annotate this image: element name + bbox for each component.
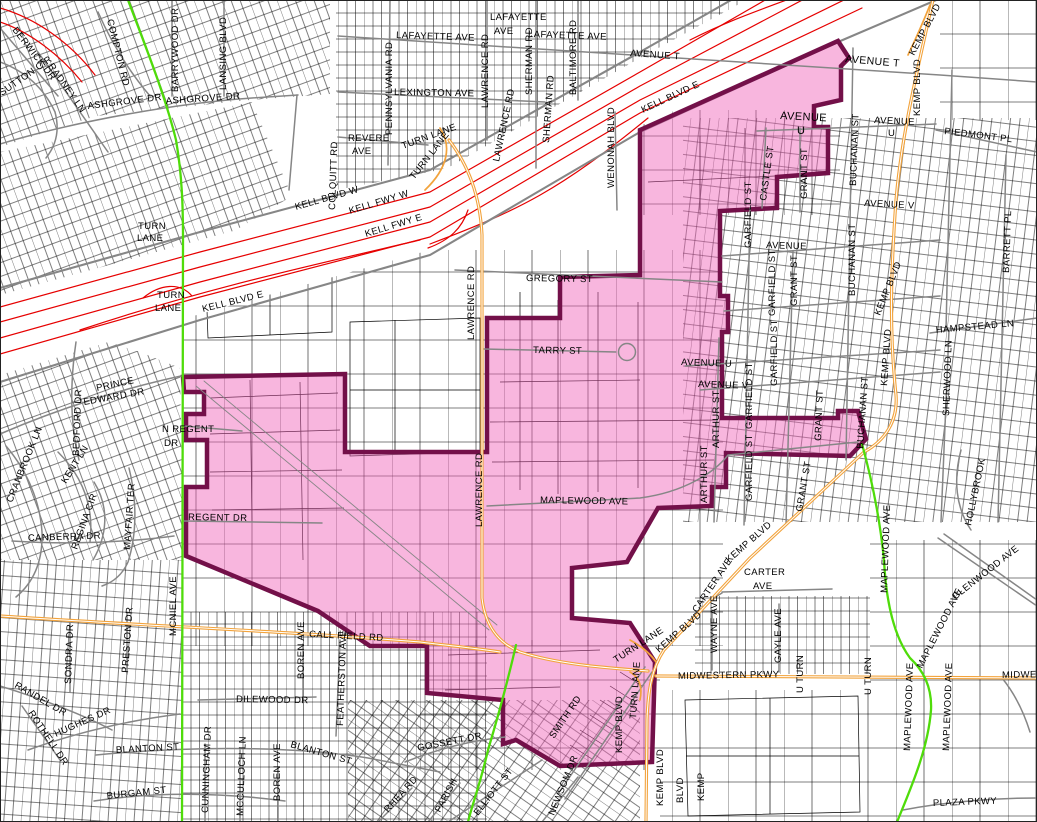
street-label-tarry-st: TARRY ST xyxy=(533,345,582,357)
street-label-avenue: AVENUE xyxy=(780,110,827,124)
street-label-ave: AVE xyxy=(494,26,514,37)
street-label-baltimore-rd: BALTIMORE RD xyxy=(568,20,579,95)
street-label-avenue-u: AVENUE U xyxy=(681,357,732,370)
street-label-u-turn: U TURN xyxy=(795,655,806,693)
street-label-maplewood-ave: MAPLEWOOD AVE xyxy=(540,495,629,508)
street-label-arthur-st: ARTHUR ST xyxy=(699,445,710,503)
street-label-sherman-rd: SHERMAN RD xyxy=(524,27,535,95)
street-label-barrywood-dr: BARRYWOOD DR xyxy=(170,8,181,92)
street-label-boren-ave: BOREN AVE xyxy=(272,743,283,801)
street-label-u-turn: U TURN xyxy=(863,657,874,695)
street-label-carter: CARTER xyxy=(744,567,785,578)
street-label-ave: AVE xyxy=(753,581,773,592)
street-label-garfield-st: GARFIELD ST xyxy=(769,319,780,386)
street-label-grant-st: GRANT ST xyxy=(813,390,826,441)
street-label-gregory-st: GREGORY ST xyxy=(526,273,593,285)
street-label-wenonah-blvd: WENONAH BLVD xyxy=(606,107,617,188)
street-label-lafayette: LAFAYETTE xyxy=(490,12,547,23)
street-label-buchanan-st: BUCHANAN ST xyxy=(847,224,858,297)
street-label-revere: REVERE xyxy=(348,133,389,144)
street-label-ave: AVE xyxy=(352,146,372,157)
street-label-wayne-ave: WAYNE AVE xyxy=(709,595,720,653)
street-label-plaza-pkwy: PLAZA PKWY xyxy=(933,796,998,809)
street-label-grant-st: GRANT ST xyxy=(799,148,810,199)
street-label-mcniel-ave: MCNIEL AVE xyxy=(168,576,179,636)
street-label-garfield-st: GARFIELD ST xyxy=(744,362,755,429)
street-label-garfield-st: GARFIELD ST xyxy=(743,181,754,248)
street-label-garfield-st: GARFIELD ST xyxy=(767,249,778,316)
street-label-dilewood-dr: DILEWOOD DR xyxy=(236,694,309,706)
street-label-kemp-blvd: KEMP BLVD xyxy=(614,696,625,753)
street-label-avenue-v: AVENUE V xyxy=(698,379,749,392)
street-label-kemp-blvd: KEMP BLVD xyxy=(912,59,923,116)
street-label-arthur-st: ARTHUR ST xyxy=(711,390,722,448)
street-label-midwestern-pkwy: MIDWESTERN PKWY xyxy=(678,669,780,682)
street-label-lane: LANE xyxy=(137,233,163,244)
street-label-grant-st: GRANT ST xyxy=(789,255,800,306)
street-label-lane: LANE xyxy=(155,303,181,314)
street-label-u: U xyxy=(797,125,805,137)
street-label-regent-dr: REGENT DR xyxy=(188,512,248,524)
map-canvas[interactable]: SUTTON CIRBERWICK DRRADNEY LNCOMPTON RDA… xyxy=(0,0,1037,822)
street-label-avenue: AVENUE xyxy=(874,115,915,128)
street-label-kemp-blvd: KEMP BLVD xyxy=(655,749,666,806)
map-viewport[interactable]: SUTTON CIRBERWICK DRRADNEY LNCOMPTON RDA… xyxy=(0,0,1037,822)
street-label-garfield-st: GARFIELD ST xyxy=(744,434,755,501)
street-label-gayle-ave: GAYLE AVE xyxy=(773,608,784,663)
street-label-lawrence-rd: LAWRENCE RD xyxy=(466,266,477,340)
street-label-kemp: KEMP xyxy=(696,772,707,801)
street-label-midwestern-pkwy: MIDWESTERN PKWY xyxy=(1002,668,1037,681)
street-label-dr: DR xyxy=(164,438,179,449)
street-label-barrett-pl: BARRETT PL xyxy=(1001,210,1014,273)
street-label-lexington-ave: LEXINGTON AVE xyxy=(394,87,475,99)
street-label-sondra-dr: SONDRA DR xyxy=(63,624,76,684)
street-label-lansing-blvd: LANSING BLVD xyxy=(218,17,229,90)
street-label-n-regent: N REGENT xyxy=(162,424,214,435)
street-label-blvd: BLVD xyxy=(675,777,686,803)
street-label-turn: TURN xyxy=(157,290,185,301)
street-label-boren-ave: BOREN AVE xyxy=(296,621,307,679)
street-label-lawrence-rd: LAWRENCE RD xyxy=(480,34,491,108)
street-label-u: U xyxy=(888,128,895,139)
street-label-lawrence-rd: LAWRENCE RD xyxy=(474,453,485,527)
street-label-turn: TURN xyxy=(138,221,166,232)
